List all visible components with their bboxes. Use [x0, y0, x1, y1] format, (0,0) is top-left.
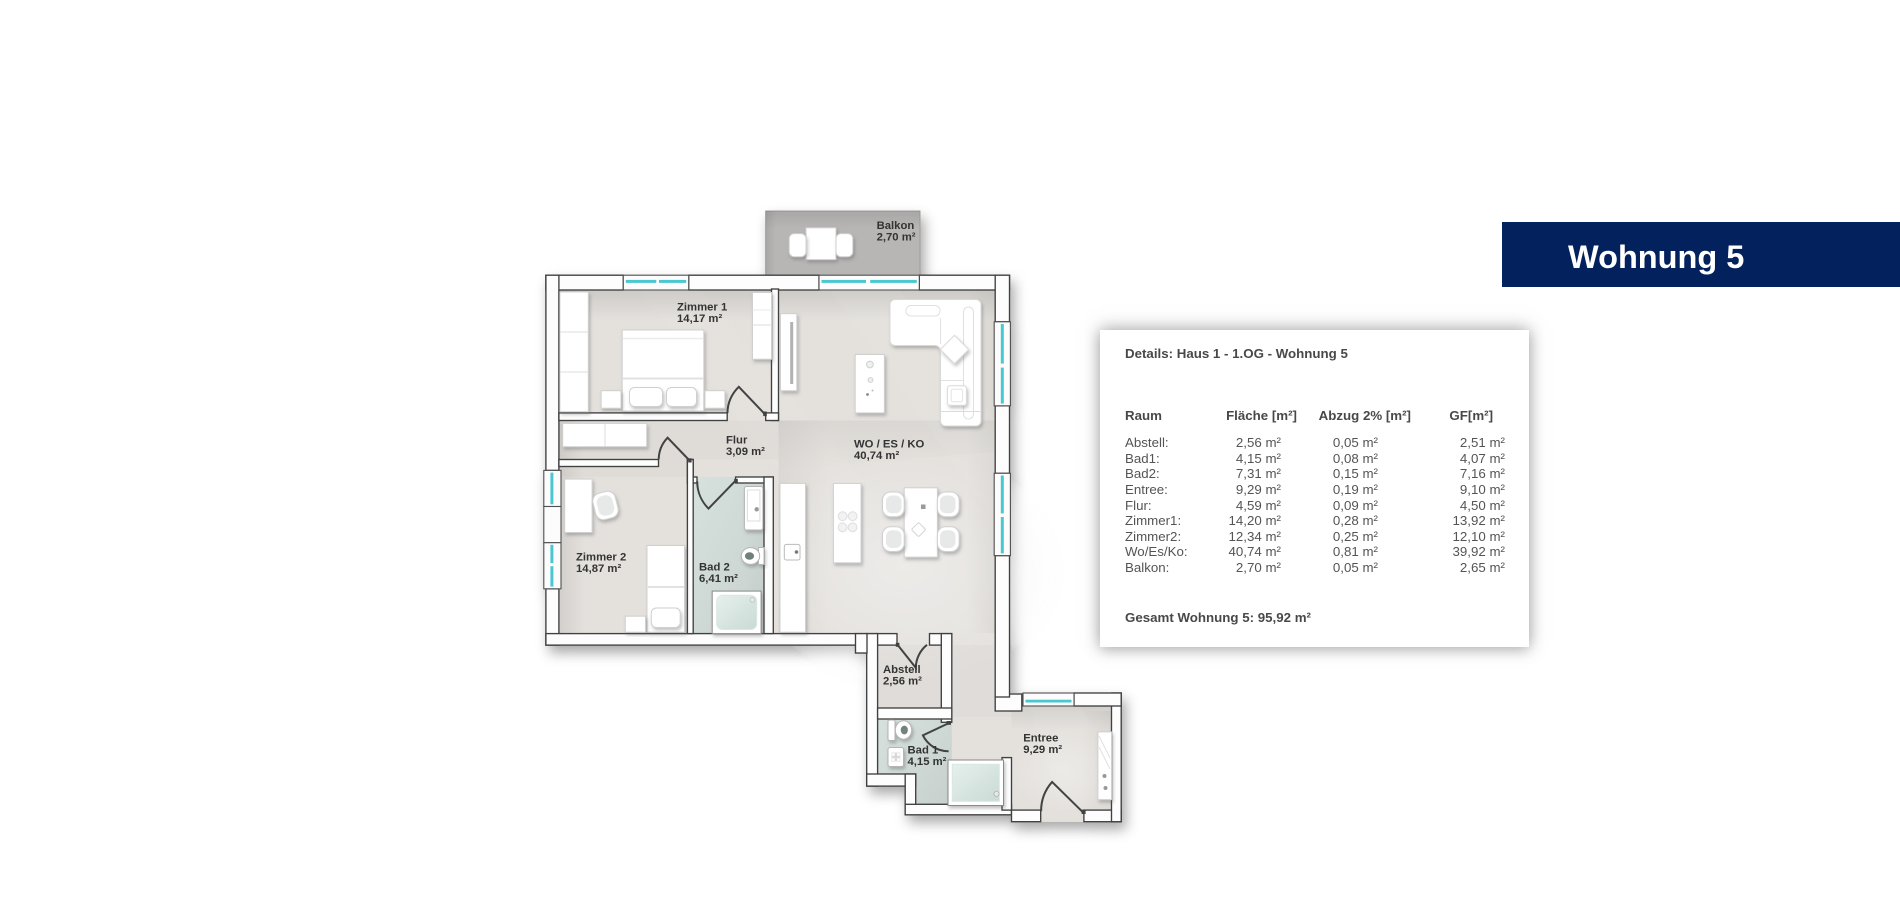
svg-text:Zimmer 2: Zimmer 2 [576, 552, 626, 564]
svg-text:Zimmer 1: Zimmer 1 [677, 302, 727, 314]
svg-text:Balkon: Balkon [877, 220, 915, 232]
svg-text:Flur: Flur [726, 435, 748, 447]
svg-text:14,87 m²: 14,87 m² [576, 563, 621, 575]
svg-text:3,09 m²: 3,09 m² [726, 446, 765, 458]
svg-text:WO / ES / KO: WO / ES / KO [854, 439, 925, 451]
svg-text:14,17 m²: 14,17 m² [677, 313, 722, 325]
svg-text:6,41 m²: 6,41 m² [699, 573, 738, 585]
svg-text:Abstell: Abstell [883, 664, 921, 676]
svg-text:Bad 1: Bad 1 [908, 745, 939, 757]
svg-text:Entree: Entree [1023, 733, 1058, 745]
svg-text:4,15 m²: 4,15 m² [908, 756, 947, 768]
svg-text:Bad 2: Bad 2 [699, 562, 730, 574]
svg-text:2,56 m²: 2,56 m² [883, 675, 922, 687]
svg-text:9,29 m²: 9,29 m² [1023, 744, 1062, 756]
svg-text:40,74 m²: 40,74 m² [854, 450, 899, 462]
svg-text:2,70 m²: 2,70 m² [877, 231, 916, 243]
